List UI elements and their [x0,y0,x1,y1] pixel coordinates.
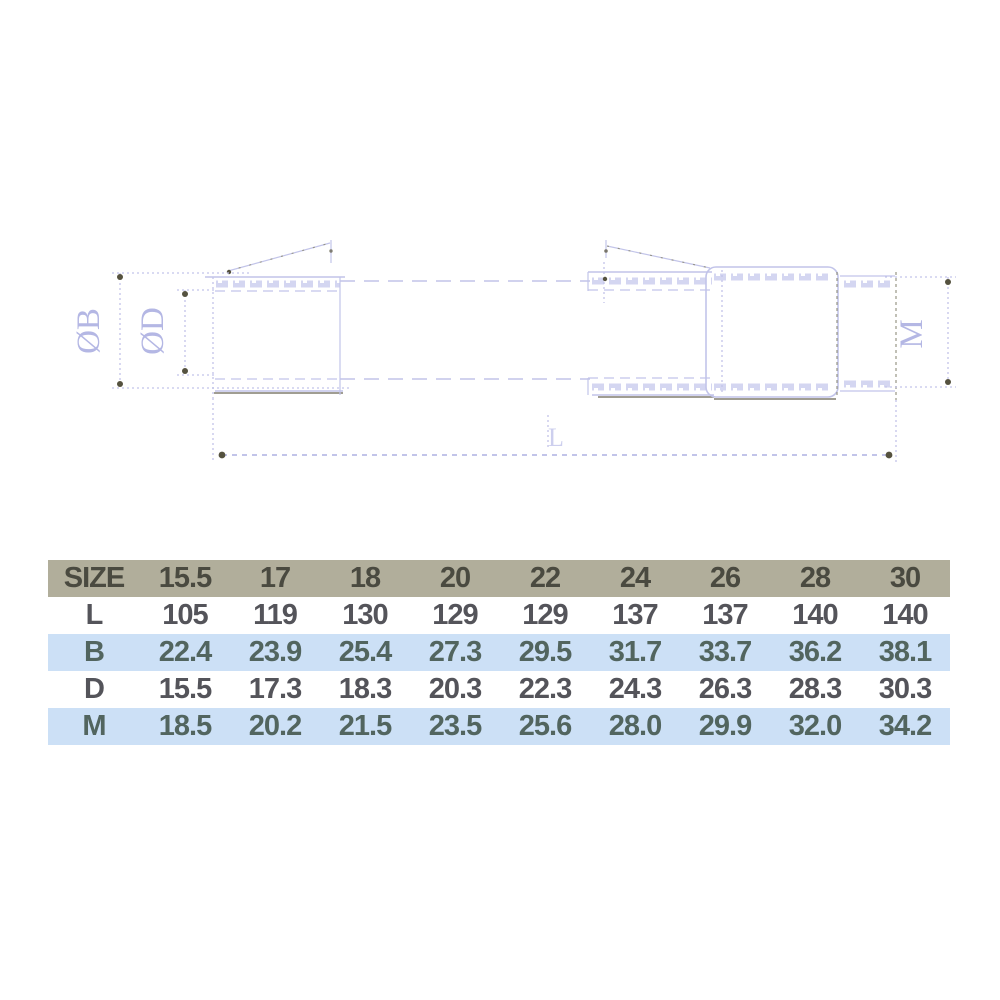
value-cell: 26.3 [680,673,770,706]
value-cell: 34.2 [860,710,950,743]
value-cell: 22.3 [500,673,590,706]
value-cell: 25.6 [500,710,590,743]
dim-label-length-l: L [548,423,564,452]
value-cell: 129 [500,599,590,632]
value-cell: 29.9 [680,710,770,743]
value-cell: 18.5 [140,710,230,743]
part-right-threaded-section [588,272,714,397]
value-cell: 15.5 [140,673,230,706]
value-cell: 25.4 [320,636,410,669]
part-left-threaded-end [205,277,345,398]
header-cell-6: 24 [590,562,680,595]
header-cell-5: 22 [500,562,590,595]
dimension-length-l: L [213,398,892,462]
dim-label-diameter-d: ØD [135,307,171,355]
value-cell: 38.1 [860,636,950,669]
value-cell: 24.3 [590,673,680,706]
part-coupling [706,267,838,399]
value-cell: 137 [680,599,770,632]
header-cell-7: 26 [680,562,770,595]
value-cell: 129 [410,599,500,632]
value-cell: 32.0 [770,710,860,743]
value-cell: 33.7 [680,636,770,669]
value-cell: 18.3 [320,673,410,706]
value-cell: 140 [860,599,950,632]
table-row-L: L105119130129129137137140140 [48,597,950,634]
part-right-end [840,272,896,462]
value-cell: 105 [140,599,230,632]
header-cell-4: 20 [410,562,500,595]
catalog-page: ØB ØD M L [0,0,1000,1000]
header-cell-1: 15.5 [140,562,230,595]
spec-table-header-row: SIZE15.51718202224262830 [48,560,950,597]
value-cell: 119 [230,599,320,632]
header-cell-size: SIZE [48,562,140,595]
left-thread-leader [227,240,333,274]
row-label-B: B [48,636,140,669]
table-row-D: D15.517.318.320.322.324.326.328.330.3 [48,671,950,708]
value-cell: 130 [320,599,410,632]
row-label-L: L [48,599,140,632]
spec-table: SIZE15.51718202224262830 L10511913012912… [48,560,950,745]
value-cell: 23.9 [230,636,320,669]
value-cell: 27.3 [410,636,500,669]
part-middle-shaft [340,281,590,379]
value-cell: 17.3 [230,673,320,706]
value-cell: 28.0 [590,710,680,743]
row-label-D: D [48,673,140,706]
dimension-diameter-b: ØB [71,273,350,388]
value-cell: 31.7 [590,636,680,669]
value-cell: 22.4 [140,636,230,669]
header-cell-9: 30 [860,562,950,595]
row-label-M: M [48,710,140,743]
header-cell-2: 17 [230,562,320,595]
spec-table-body: L105119130129129137137140140B22.423.925.… [48,597,950,745]
table-row-M: M18.520.221.523.525.628.029.932.034.2 [48,708,950,745]
technical-drawing: ØB ØD M L [0,0,1000,520]
value-cell: 140 [770,599,860,632]
value-cell: 20.3 [410,673,500,706]
value-cell: 23.5 [410,710,500,743]
value-cell: 30.3 [860,673,950,706]
value-cell: 137 [590,599,680,632]
dimension-diameter-d: ØD [135,290,216,375]
header-cell-3: 18 [320,562,410,595]
value-cell: 29.5 [500,636,590,669]
value-cell: 36.2 [770,636,860,669]
value-cell: 20.2 [230,710,320,743]
value-cell: 21.5 [320,710,410,743]
dim-label-thread-m: M [894,319,930,348]
value-cell: 28.3 [770,673,860,706]
table-row-B: B22.423.925.427.329.531.733.736.238.1 [48,634,950,671]
dim-label-diameter-b: ØB [71,308,107,354]
header-cell-8: 28 [770,562,860,595]
